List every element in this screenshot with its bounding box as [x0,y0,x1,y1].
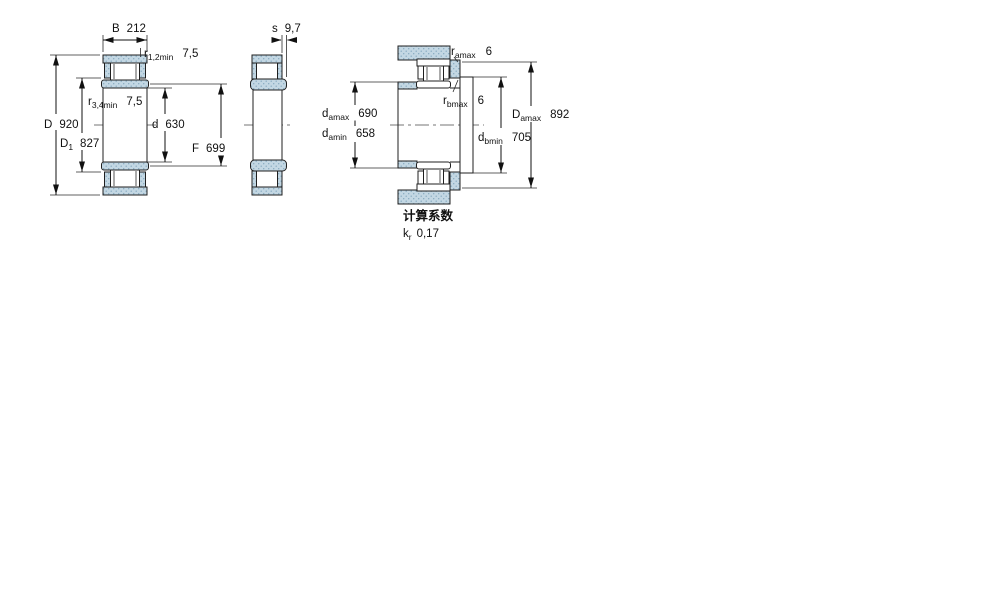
dimension-D: D920 [44,55,100,195]
dimension-B: B212 [103,23,147,52]
dim-Da-max-text: Damax892 [512,109,569,123]
roller [424,66,444,81]
cage-strip [278,63,283,79]
outer-ring-flange [418,66,424,79]
dimension-d: d630 [147,88,185,162]
dim-da-max-text: damax690 [322,108,377,122]
dim-r12-text: r1,2min7,5 [144,48,198,62]
dimension-ra: ramax6 [451,46,492,62]
outer-ring-flange [140,172,146,187]
dim-D1-text: D1827 [60,138,99,152]
inner-ring-body [253,90,282,160]
outer-ring-flange [105,172,111,187]
bearing-mounting-view [390,46,484,204]
outer-ring-flange [140,63,146,78]
dim-s-text: s9,7 [272,23,301,35]
outer-ring-bottom [252,187,282,195]
inner-ring-lip-bottom [251,160,287,171]
outer-ring-bottom [417,184,450,191]
inner-ring-lip-top [251,79,287,90]
dim-db-min-text: dbmin705 [478,132,531,146]
dim-F-text: F699 [192,143,225,155]
kr-factor-text: kr0,17 [403,228,439,242]
dim-da-min-text: damin658 [322,128,375,142]
outer-ring-flange [444,66,450,79]
roller [111,170,140,187]
dimension-db: dbmin705 [473,77,531,173]
roller [257,171,278,187]
housing-shoulder-bottom [450,172,460,190]
outer-ring-flange [105,63,111,78]
shaft-shoulder-bottom [398,161,417,168]
cage-strip [252,171,257,187]
bearing-front-section-view [94,55,156,195]
housing-top [398,46,450,60]
inner-ring-top [102,80,149,88]
housing-bottom [398,190,450,204]
inner-ring-bottom [102,162,149,170]
dim-ra-text: ramax6 [451,46,492,60]
roller [257,63,278,79]
roller [424,169,444,184]
dimension-r12: r1,2min7,5 [141,48,199,62]
cage-strip [278,171,283,187]
housing-shoulder-top [450,60,460,78]
inner-ring-bottom [417,162,451,169]
dimension-F: F699 [150,84,227,166]
dim-d-text: d630 [152,119,185,131]
outer-ring-top [252,55,282,63]
shaft-shoulder-top [398,82,417,89]
dimension-da: damax690 damin658 [322,82,398,168]
calculation-factors: 计算系数 kr0,17 [403,208,454,242]
cage-strip [252,63,257,79]
outer-ring-bottom [103,187,147,195]
outer-ring-flange [444,171,450,184]
inner-ring-top [417,81,451,88]
outer-ring-top [417,59,450,66]
dim-B-text: B212 [112,23,146,35]
roller [111,63,140,80]
technical-drawing-canvas: B212 r1,2min7,5 r3,4min7,5 D920 D1827 [0,0,1000,600]
dim-D-text: D920 [44,119,79,131]
outer-ring-flange [418,171,424,184]
abutment-step [460,77,473,173]
calculation-factors-heading: 计算系数 [403,208,454,223]
